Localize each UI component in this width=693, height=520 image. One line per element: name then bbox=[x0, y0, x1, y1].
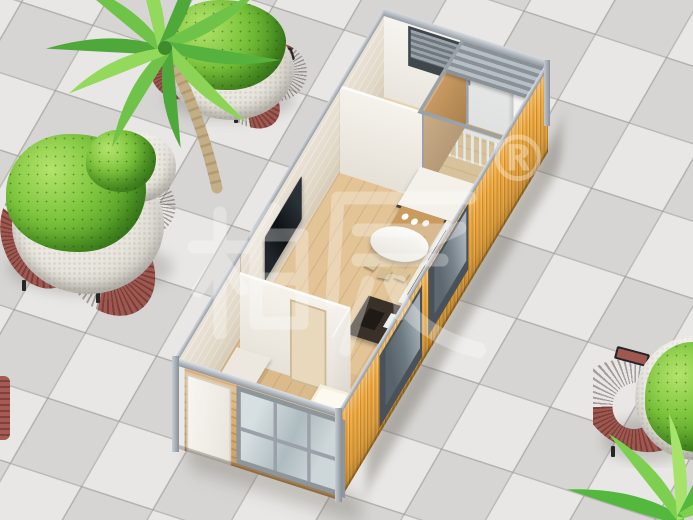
render-stage: 柏辰 ® bbox=[0, 0, 693, 520]
watermark-glyphs bbox=[0, 0, 693, 520]
registered-trademark: ® bbox=[486, 128, 550, 192]
